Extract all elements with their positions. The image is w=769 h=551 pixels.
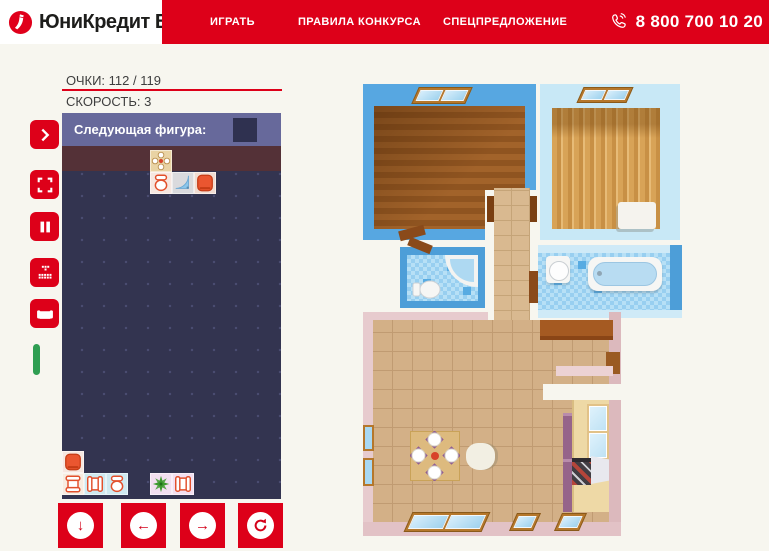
pause-button[interactable] <box>30 212 59 241</box>
score-label: ОЧКИ: <box>66 73 105 88</box>
sofa-icon <box>36 305 54 323</box>
bathtub <box>588 257 662 291</box>
score-divider <box>62 89 282 91</box>
unicredit-logo-icon <box>8 10 33 35</box>
speed-value: 3 <box>144 94 151 109</box>
window-pane <box>558 516 582 528</box>
bed <box>618 202 656 229</box>
fullscreen-button[interactable] <box>30 170 59 199</box>
door <box>487 196 494 222</box>
room-kitchen-living <box>363 312 621 536</box>
phone-number: 8 800 700 10 20 <box>636 12 763 32</box>
move-down-button[interactable]: ↓ <box>58 503 103 548</box>
chair-tile <box>84 473 106 495</box>
board-tiles <box>62 113 281 499</box>
kitchen-cabinet-purple <box>563 413 572 512</box>
plant-tile <box>150 473 172 495</box>
apartment-floorplan <box>356 76 708 546</box>
speed-label: СКОРОСТЬ: <box>66 94 140 109</box>
nav-item-play[interactable]: ИГРАТЬ <box>210 0 255 44</box>
room-bathroom-left <box>400 247 485 308</box>
kitchen-hood <box>591 456 609 484</box>
toilet-tile <box>106 473 128 495</box>
shower-tile <box>172 172 194 194</box>
window-pane <box>408 515 449 529</box>
kitchen-counter-top <box>540 320 613 340</box>
door <box>529 271 538 303</box>
score-line: ОЧКИ: 112 / 119 <box>66 73 161 88</box>
window <box>363 425 374 451</box>
move-right-button[interactable]: → <box>180 503 225 548</box>
nav-item-offer[interactable]: СПЕЦПРЕДЛОЖЕНИЕ <box>443 0 567 44</box>
glass-cabinet <box>587 404 609 460</box>
cabinet-pane <box>589 406 607 431</box>
wall <box>670 245 682 318</box>
expand-button[interactable] <box>30 120 59 149</box>
window-pane <box>604 90 629 100</box>
sink <box>546 256 570 283</box>
wall-opening <box>543 384 621 400</box>
door <box>530 196 537 222</box>
rotate-icon <box>247 512 274 539</box>
wall <box>538 245 682 253</box>
dining-table <box>410 431 460 481</box>
cabinet-pane <box>589 433 607 458</box>
chair-tile <box>172 473 194 495</box>
tetris-pieces-icon <box>36 264 54 282</box>
furniture-button[interactable] <box>30 299 59 328</box>
wall <box>363 312 373 536</box>
shelf <box>556 366 613 376</box>
pieces-button[interactable] <box>30 258 59 287</box>
window <box>404 512 491 532</box>
room-bathroom-right <box>538 245 682 318</box>
site-header: ЮниКредит Банк ИГРАТЬ ПРАВИЛА КОНКУРСА С… <box>0 0 769 44</box>
window-pane <box>445 515 486 529</box>
window-pane <box>581 90 606 100</box>
wall <box>363 522 621 536</box>
toilet-tile <box>150 172 172 194</box>
chevron-right-icon <box>36 126 54 144</box>
move-left-button[interactable]: ← <box>121 503 166 548</box>
window <box>411 87 473 104</box>
arrow-down-icon: ↓ <box>67 512 94 539</box>
armchair-tile <box>62 473 84 495</box>
toilet <box>412 277 442 302</box>
fullscreen-icon <box>36 176 54 194</box>
score-value: 112 / 119 <box>109 73 161 88</box>
nav-bar: ИГРАТЬ ПРАВИЛА КОНКУРСА СПЕЦПРЕДЛОЖЕНИЕ … <box>162 0 769 44</box>
stool-tile <box>62 451 84 473</box>
window-pane <box>416 90 444 101</box>
sound-indicator[interactable] <box>33 344 40 375</box>
window <box>363 458 374 486</box>
phone-icon <box>608 12 628 32</box>
phone-link[interactable]: 8 800 700 10 20 <box>608 0 763 44</box>
table-tile <box>150 150 172 172</box>
pause-icon <box>36 218 54 236</box>
arrow-right-icon: → <box>189 512 216 539</box>
window-pane <box>441 90 469 101</box>
window <box>576 87 633 103</box>
nav-item-rules[interactable]: ПРАВИЛА КОНКУРСА <box>298 0 421 44</box>
game-board: Следующая фигура: <box>62 113 281 499</box>
room-bedroom-right <box>540 84 680 240</box>
speed-line: СКОРОСТЬ: 3 <box>66 94 151 109</box>
arrow-left-icon: ← <box>130 512 157 539</box>
stool-tile <box>194 172 216 194</box>
window-pane <box>513 516 536 528</box>
chair <box>466 443 495 470</box>
stove <box>572 458 591 485</box>
wall <box>609 312 621 536</box>
wall <box>363 312 488 320</box>
rotate-button[interactable] <box>238 503 283 548</box>
